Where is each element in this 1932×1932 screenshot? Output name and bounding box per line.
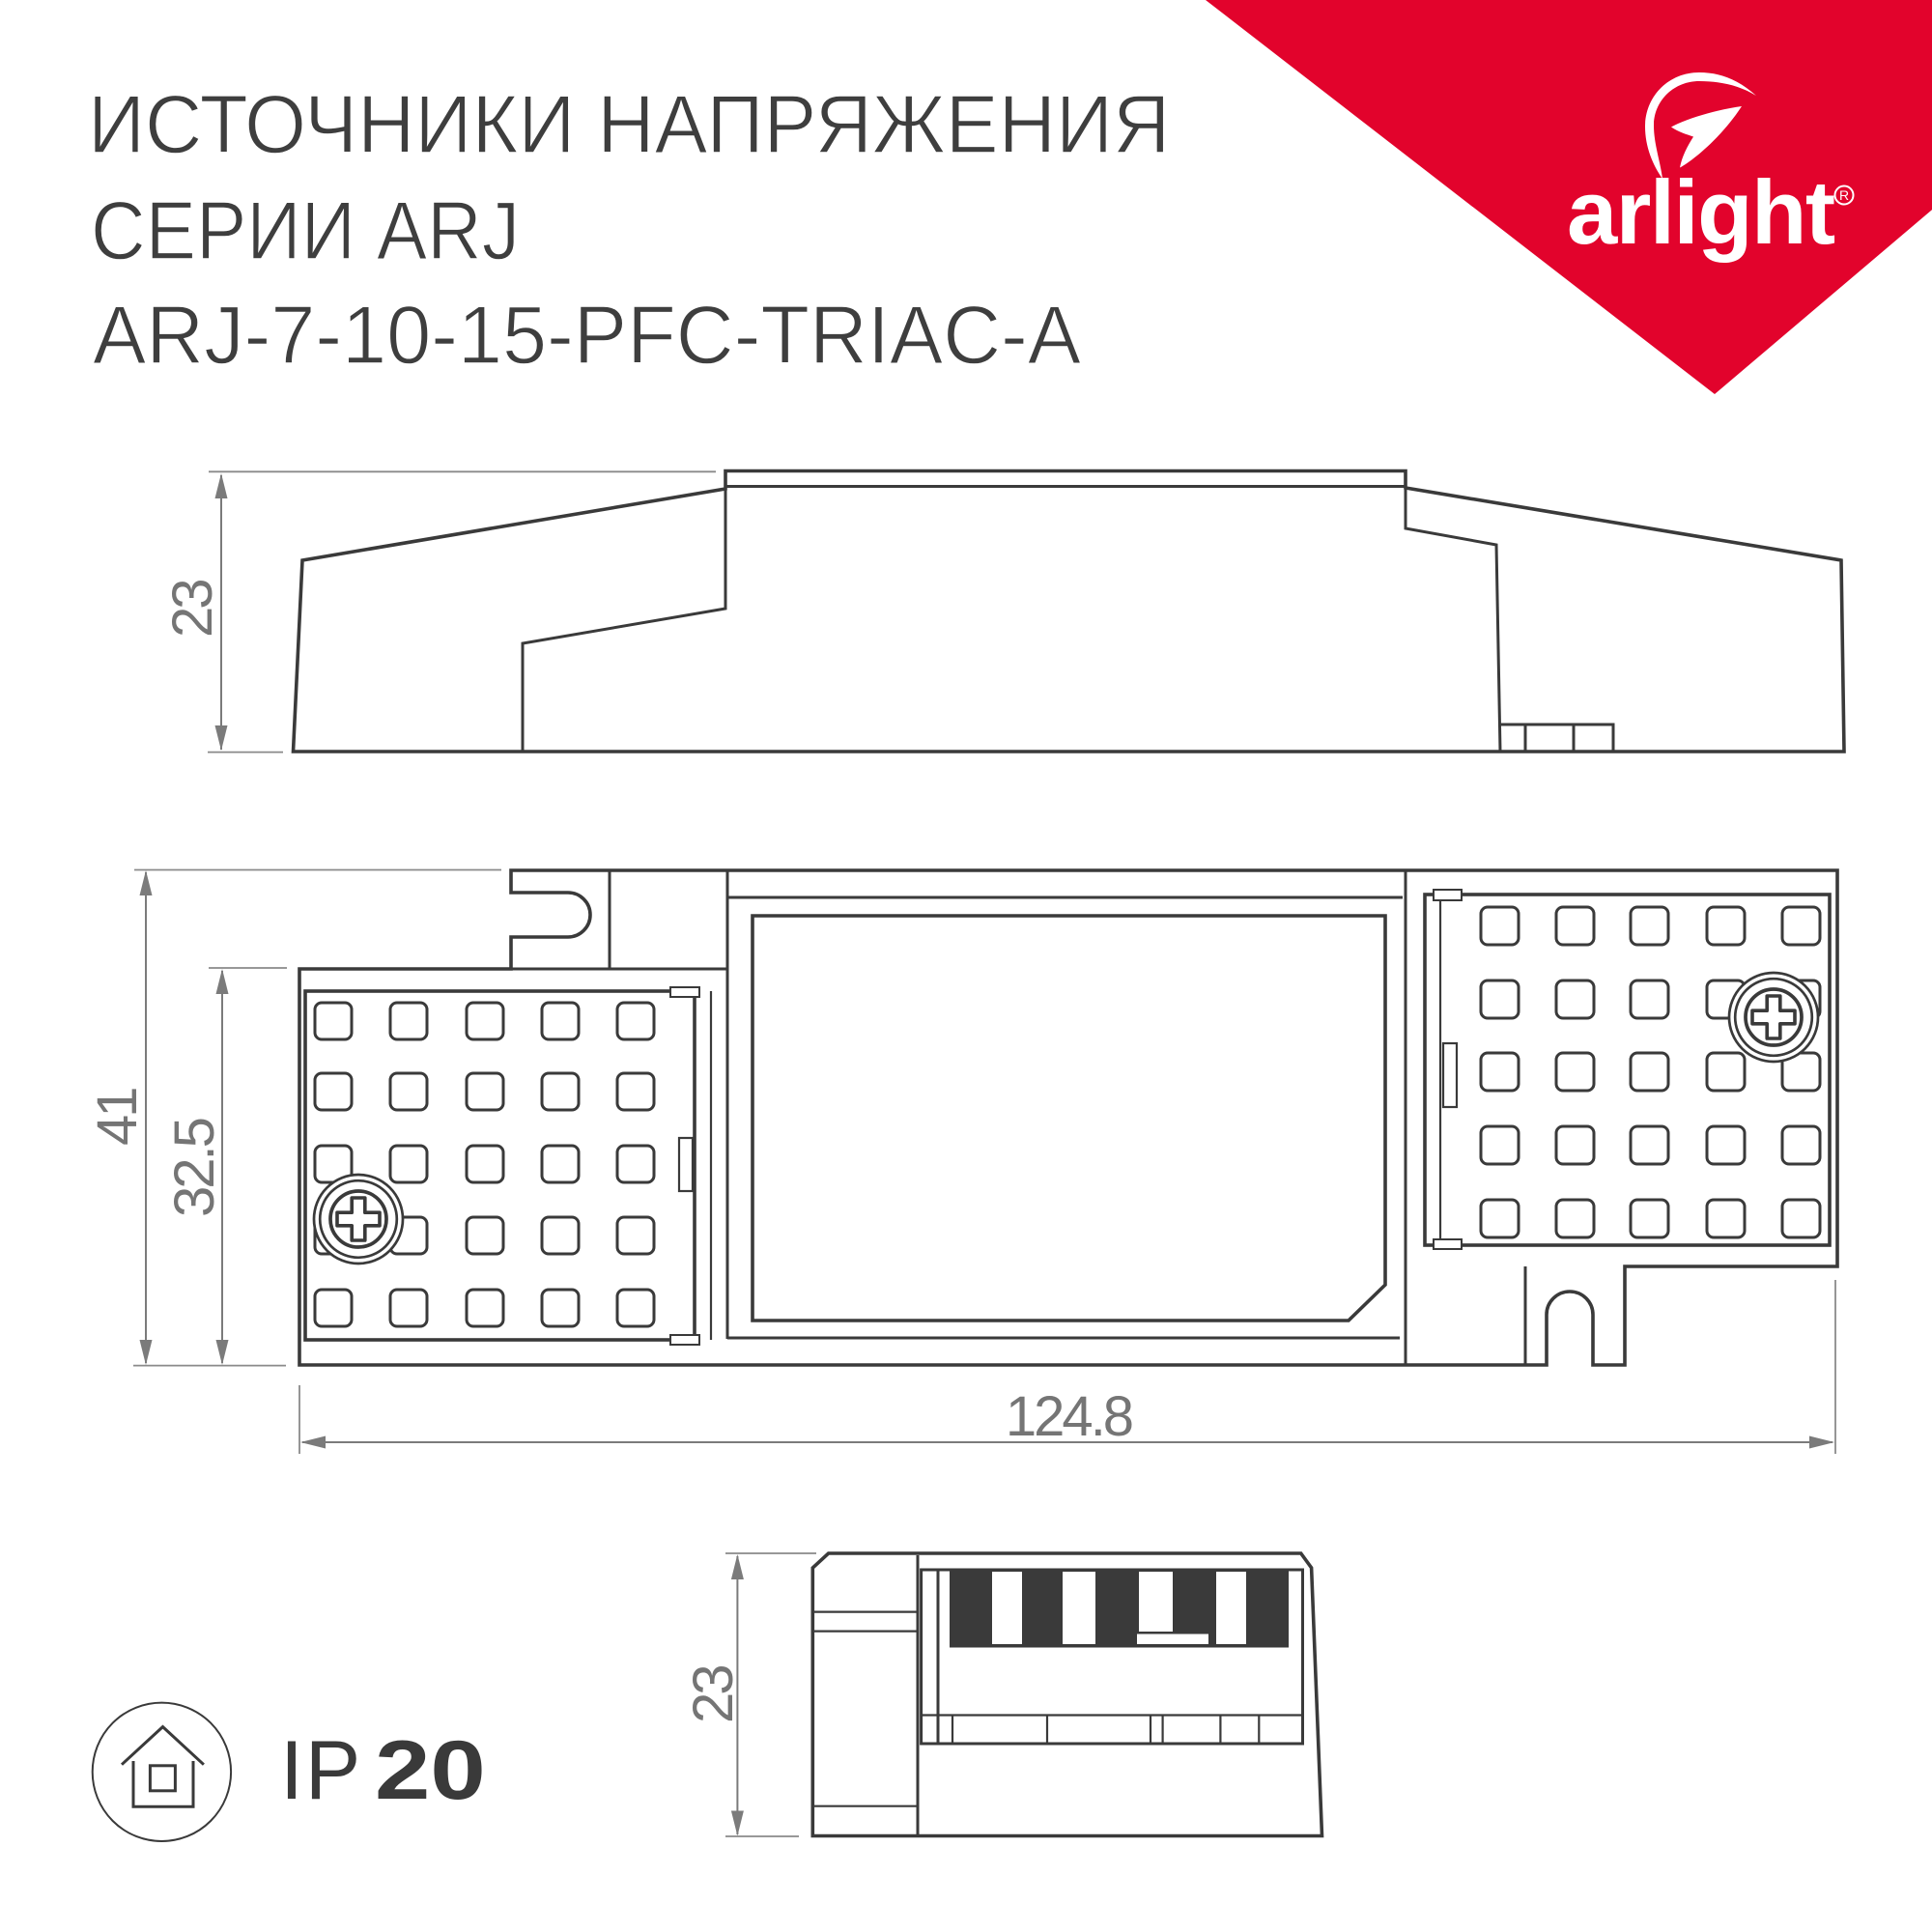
svg-text:20: 20	[375, 1724, 486, 1817]
svg-text:32.5: 32.5	[163, 1119, 226, 1217]
svg-text:IP: IP	[280, 1724, 362, 1817]
svg-text:23: 23	[682, 1666, 745, 1723]
svg-text:41: 41	[86, 1089, 149, 1146]
svg-text:ИСТОЧНИКИ НАПРЯЖЕНИЯ: ИСТОЧНИКИ НАПРЯЖЕНИЯ	[88, 78, 1170, 171]
svg-text:R: R	[1839, 187, 1849, 203]
svg-text:СЕРИИ ARJ: СЕРИИ ARJ	[91, 185, 520, 277]
svg-text:23: 23	[161, 581, 224, 638]
svg-text:124.8: 124.8	[1006, 1385, 1132, 1448]
svg-text:arlight: arlight	[1567, 161, 1835, 263]
svg-text:ARJ-7-10-15-PFC-TRIAC-A: ARJ-7-10-15-PFC-TRIAC-A	[93, 289, 1081, 381]
